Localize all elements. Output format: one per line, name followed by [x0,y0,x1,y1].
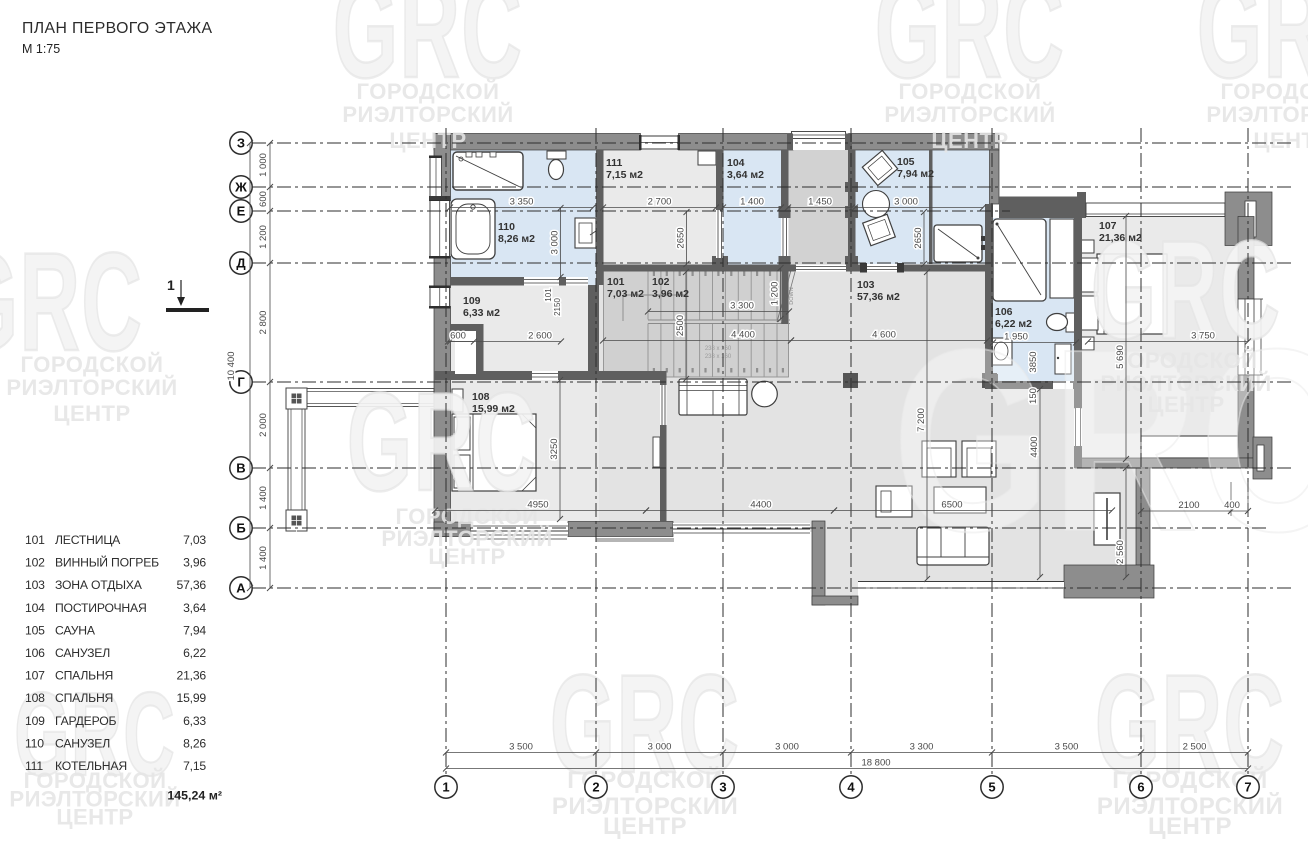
svg-text:ГОРОДСКОЙ: ГОРОДСКОЙ [1115,348,1258,373]
svg-text:7: 7 [1244,780,1251,795]
svg-text:21,36 м2: 21,36 м2 [1099,232,1142,244]
svg-text:4400: 4400 [750,500,771,511]
svg-text:8,26: 8,26 [183,736,206,750]
svg-text:РИЭЛТОРСКИЙ: РИЭЛТОРСКИЙ [342,102,513,127]
svg-text:ЦЕНТР: ЦЕНТР [389,128,466,153]
svg-text:106: 106 [995,306,1013,318]
svg-text:3 300: 3 300 [730,301,754,312]
svg-text:2 500: 2 500 [1183,742,1207,753]
svg-text:ПЛАН ПЕРВОГО ЭТАЖА: ПЛАН ПЕРВОГО ЭТАЖА [22,20,213,37]
svg-text:2150: 2150 [553,298,562,316]
svg-text:2 600: 2 600 [528,331,552,342]
svg-text:ЦЕНТР: ЦЕНТР [603,813,687,840]
svg-text:САНУЗЕЛ: САНУЗЕЛ [55,646,110,660]
svg-text:103: 103 [857,279,875,291]
svg-text:104: 104 [25,601,45,615]
svg-text:238 x 160: 238 x 160 [705,346,732,352]
svg-text:ГАРДЕРОБ: ГАРДЕРОБ [55,714,117,728]
svg-text:106: 106 [25,646,45,660]
svg-text:145,24 м²: 145,24 м² [167,789,222,803]
svg-text:600: 600 [450,331,466,342]
svg-text:4400: 4400 [1029,436,1040,457]
svg-text:104: 104 [727,157,745,169]
svg-text:3,64 м2: 3,64 м2 [727,169,764,181]
svg-text:2 000: 2 000 [258,413,269,437]
svg-text:5 690: 5 690 [1115,345,1126,369]
svg-text:ЗОНА ОТДЫХА: ЗОНА ОТДЫХА [55,578,143,592]
svg-text:ГОРОДСКОЙ: ГОРОДСКОЙ [1221,79,1308,104]
svg-text:600: 600 [258,191,269,207]
svg-text:111: 111 [606,157,623,169]
svg-text:4950: 4950 [527,500,548,511]
svg-text:6500: 6500 [941,500,962,511]
svg-text:2500: 2500 [675,315,686,336]
svg-text:3 350: 3 350 [510,197,534,208]
svg-text:РИЭЛТОРСКИЙ: РИЭЛТОРСКИЙ [6,375,177,400]
svg-text:1 450: 1 450 [808,197,832,208]
svg-text:ЦЕНТР: ЦЕНТР [56,804,133,829]
svg-text:1 950: 1 950 [1004,332,1028,343]
svg-text:3,64: 3,64 [183,601,206,615]
svg-text:4 600: 4 600 [872,330,896,341]
svg-text:1 000: 1 000 [258,153,269,177]
svg-text:21,36: 21,36 [177,669,207,683]
svg-text:3 000: 3 000 [894,197,918,208]
svg-text:3: 3 [719,780,726,795]
svg-text:57,36 м2: 57,36 м2 [857,291,900,303]
svg-text:3 000: 3 000 [550,231,561,255]
svg-text:ГОРОДСКОЙ: ГОРОДСКОЙ [21,352,164,377]
svg-text:7,94: 7,94 [183,623,206,637]
svg-text:2 800: 2 800 [258,311,269,335]
svg-text:РИЭЛТОРСКИЙ: РИЭЛТОРСКИЙ [1206,102,1308,127]
svg-text:4 400: 4 400 [731,330,755,341]
svg-text:ЦЕНТР: ЦЕНТР [1253,128,1308,153]
svg-text:400: 400 [1224,500,1240,511]
svg-text:ЦЕНТР: ЦЕНТР [1147,392,1224,417]
svg-text:ЦЕНТР: ЦЕНТР [1148,813,1232,840]
svg-text:В: В [236,461,245,476]
svg-text:6: 6 [1137,780,1144,795]
svg-text:1: 1 [167,277,175,293]
svg-text:7,15 м2: 7,15 м2 [606,169,643,181]
svg-text:2 560: 2 560 [1115,540,1126,564]
svg-text:3,96: 3,96 [183,556,206,570]
svg-text:238 x 160: 238 x 160 [705,354,732,360]
svg-text:ГОРОДСКОЙ: ГОРОДСКОЙ [899,79,1042,104]
svg-text:З: З [237,136,245,151]
svg-text:3 300: 3 300 [910,742,934,753]
svg-text:10 400: 10 400 [226,351,237,380]
svg-text:109: 109 [25,714,45,728]
svg-text:102: 102 [25,556,45,570]
svg-text:15,99 м2: 15,99 м2 [472,403,515,415]
svg-text:3 500: 3 500 [509,742,533,753]
svg-text:7,03: 7,03 [183,533,206,547]
svg-text:ГОРОДСКОЙ: ГОРОДСКОЙ [357,79,500,104]
svg-text:СПАЛЬНЯ: СПАЛЬНЯ [55,669,113,683]
svg-text:А: А [236,581,246,596]
svg-text:6,33: 6,33 [183,714,206,728]
svg-text:ЛЕСТНИЦА: ЛЕСТНИЦА [55,533,121,547]
svg-text:3850: 3850 [1028,351,1039,372]
svg-text:105: 105 [897,156,915,168]
svg-text:ВИННЫЙ ПОГРЕБ: ВИННЫЙ ПОГРЕБ [55,555,159,570]
svg-text:108: 108 [25,691,45,705]
svg-text:ЦЕНТР: ЦЕНТР [931,128,1008,153]
svg-text:7,03 м2: 7,03 м2 [607,288,644,300]
svg-text:2100: 2100 [1178,500,1199,511]
svg-text:3 000: 3 000 [648,742,672,753]
svg-text:2650: 2650 [913,227,924,248]
svg-text:Е: Е [237,204,246,219]
svg-text:4: 4 [847,780,855,795]
svg-text:1 200: 1 200 [770,282,781,306]
svg-text:Д: Д [236,256,246,271]
svg-text:3 500: 3 500 [1055,742,1079,753]
svg-text:101: 101 [544,288,553,302]
svg-text:103: 103 [25,578,45,592]
svg-text:6,22 м2: 6,22 м2 [995,318,1032,330]
svg-text:3 750: 3 750 [1191,331,1215,342]
svg-text:6,33 м2: 6,33 м2 [463,307,500,319]
svg-text:107: 107 [25,669,45,683]
svg-text:1 400: 1 400 [740,197,764,208]
svg-text:М 1:75: М 1:75 [22,42,60,56]
svg-text:РИЭЛТОРСКИЙ: РИЭЛТОРСКИЙ [884,102,1055,127]
svg-text:1: 1 [442,780,449,795]
svg-text:107: 107 [1099,220,1117,232]
svg-text:109: 109 [463,295,481,307]
svg-text:GRC: GRC [347,364,537,520]
svg-text:18 800: 18 800 [861,758,890,769]
svg-text:КОТЕЛЬНАЯ: КОТЕЛЬНАЯ [55,759,127,773]
svg-text:101: 101 [25,533,45,547]
svg-text:7,94 м2: 7,94 м2 [897,168,934,180]
svg-text:Б: Б [236,521,245,536]
svg-text:3 000: 3 000 [775,742,799,753]
svg-text:5: 5 [988,780,995,795]
svg-text:110: 110 [498,221,515,233]
svg-text:ЦЕНТР: ЦЕНТР [53,401,130,426]
svg-text:ЦЕНТР: ЦЕНТР [428,544,505,569]
svg-text:105: 105 [25,623,45,637]
svg-text:102: 102 [652,276,670,288]
svg-text:1 200: 1 200 [258,225,269,249]
svg-text:Ж: Ж [234,180,247,195]
svg-text:СПАЛЬНЯ: СПАЛЬНЯ [55,691,113,705]
svg-text:1 400: 1 400 [258,546,269,570]
svg-text:3250: 3250 [549,438,560,459]
svg-text:1 400: 1 400 [258,486,269,510]
svg-text:8,26 м2: 8,26 м2 [498,233,535,245]
svg-text:2650: 2650 [676,227,687,248]
svg-text:110: 110 [25,736,44,750]
svg-text:2 700: 2 700 [648,197,672,208]
svg-text:САУНА: САУНА [55,623,96,637]
svg-text:ПОСТИРОЧНАЯ: ПОСТИРОЧНАЯ [55,601,147,615]
svg-text:2: 2 [592,780,599,795]
svg-text:DOWN: DOWN [789,287,795,304]
svg-text:150: 150 [1028,388,1039,404]
svg-text:7,15: 7,15 [183,759,206,773]
svg-text:3,96 м2: 3,96 м2 [652,288,689,300]
svg-text:57,36: 57,36 [177,578,207,592]
svg-text:7 200: 7 200 [916,408,927,432]
svg-text:Г: Г [237,375,245,390]
svg-text:6,22: 6,22 [183,646,206,660]
svg-text:108: 108 [472,391,490,403]
svg-text:САНУЗЕЛ: САНУЗЕЛ [55,736,110,750]
svg-text:101: 101 [607,276,625,288]
svg-text:15,99: 15,99 [177,691,207,705]
svg-text:111: 111 [25,759,43,773]
